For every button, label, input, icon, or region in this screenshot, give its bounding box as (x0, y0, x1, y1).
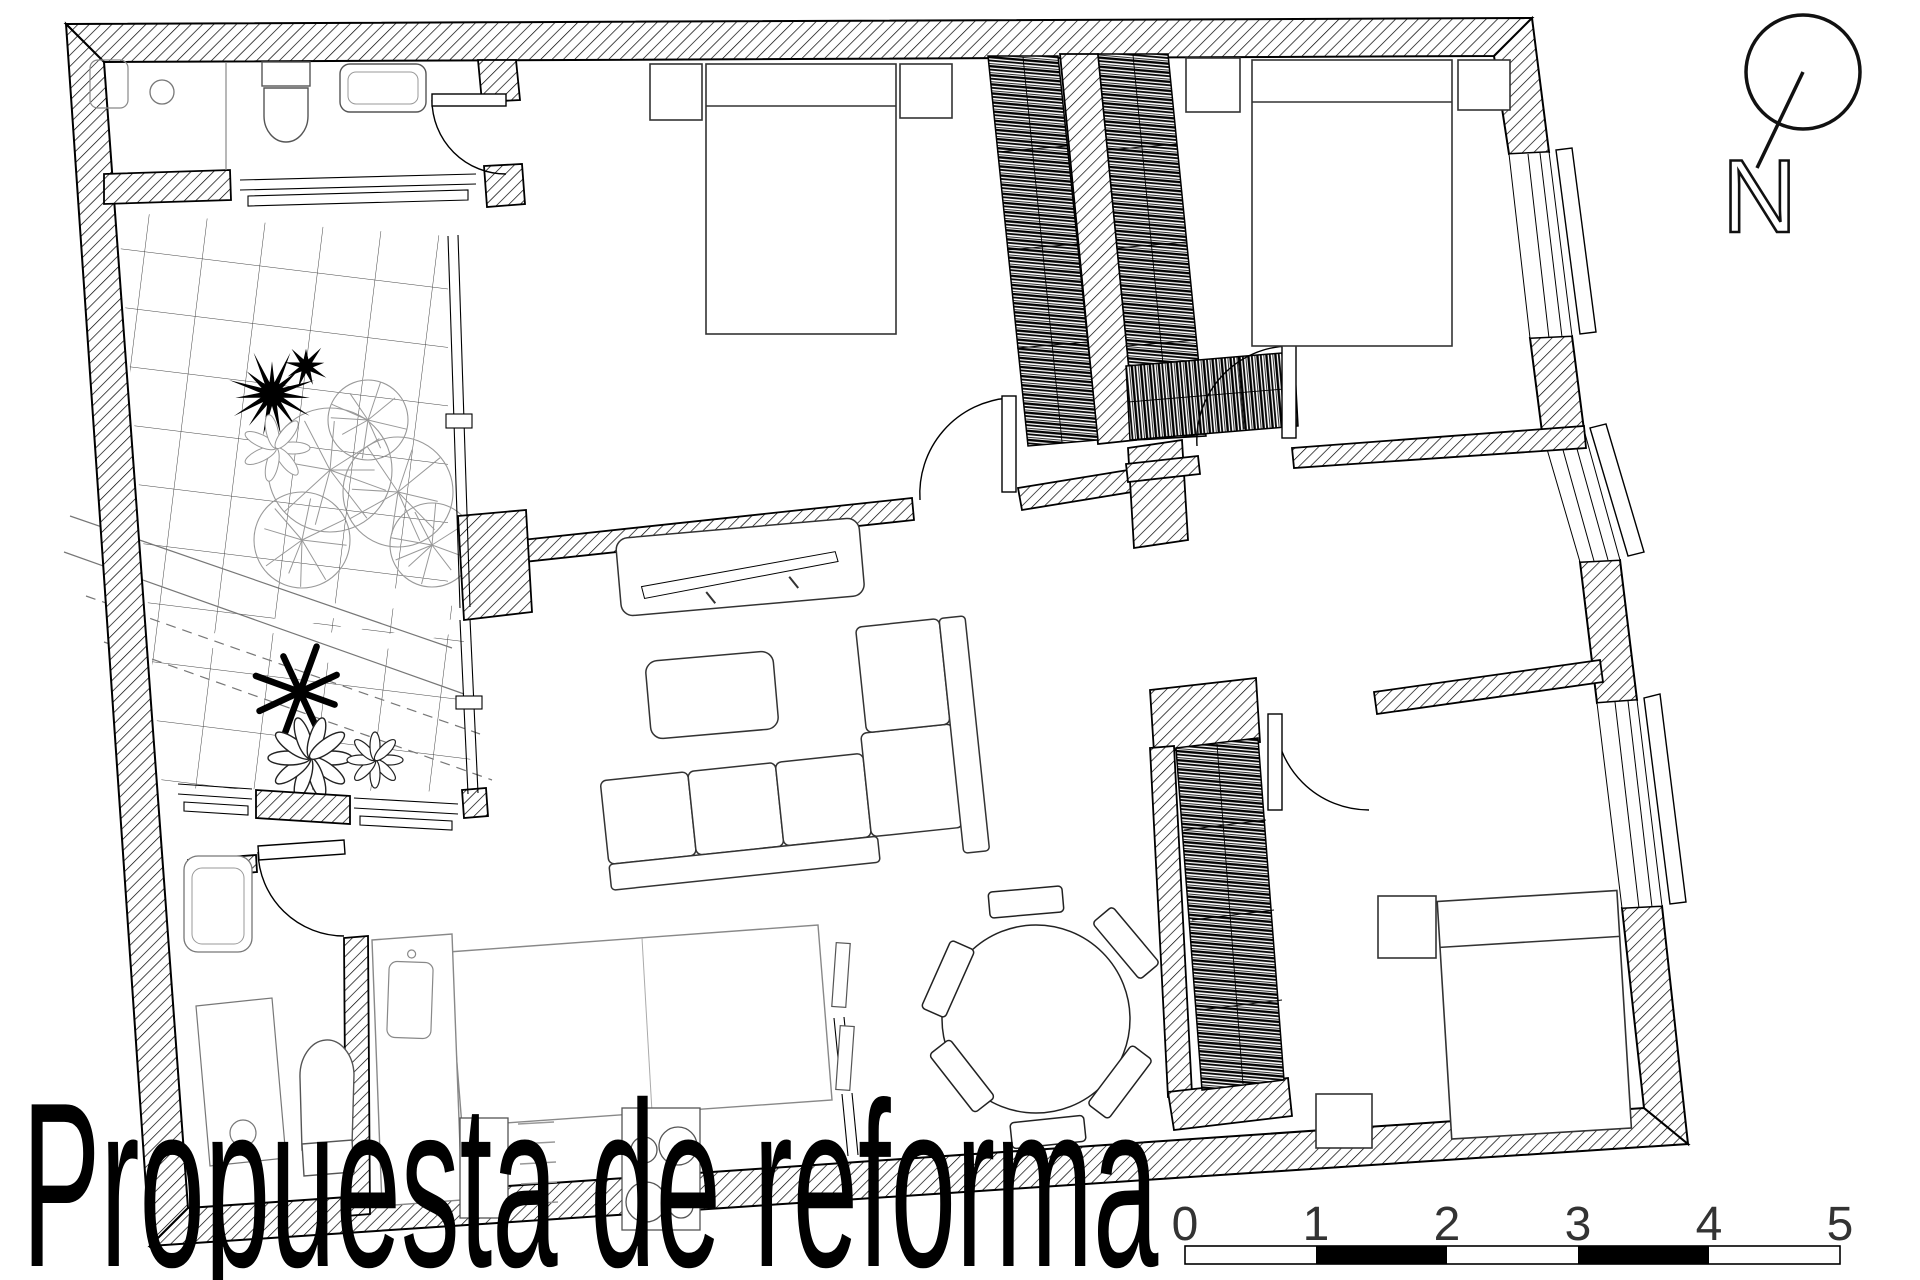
nightstand (900, 64, 952, 118)
wall-top (66, 18, 1532, 62)
wardrobe-bed2 (1126, 352, 1298, 440)
washbasin (184, 856, 252, 952)
bathroom-1 (90, 60, 426, 170)
scale-bar-track (1185, 1246, 1840, 1264)
scale-tick-label: 4 (1696, 1198, 1723, 1251)
nightstand (650, 64, 702, 120)
bedroom-3 (1316, 890, 1631, 1148)
dining-chair (988, 886, 1064, 918)
scale-tick-label: 2 (1434, 1198, 1461, 1251)
wall-bed2-bottom (1292, 426, 1586, 468)
floor-plan-sheet: N 0 1 2 3 4 5 Propuesta de reforma (0, 0, 1920, 1280)
bed (1437, 890, 1631, 1139)
scale-tick-label: 0 (1172, 1198, 1199, 1251)
living-room (587, 518, 990, 891)
door-bathroom1 (432, 94, 506, 174)
bedroom-1 (650, 64, 952, 334)
floor-plan-drawing: N 0 1 2 3 4 5 Propuesta de reforma (0, 0, 1920, 1280)
wall-bed3-top (1374, 660, 1603, 714)
scale-bar: 0 1 2 3 4 5 (1172, 1198, 1854, 1264)
bed (706, 64, 896, 334)
north-arrow-icon: N (1722, 15, 1860, 255)
sheet-title: Propuesta de reforma (22, 1055, 1159, 1280)
window-bedroom3 (1597, 694, 1686, 908)
door-bedroom3 (1268, 714, 1369, 810)
window-bedroom2 (1509, 148, 1596, 338)
nightstand (1186, 58, 1240, 112)
window-sill (184, 802, 248, 815)
window-sill (248, 190, 468, 206)
shower-drain (150, 80, 174, 104)
stool (832, 943, 850, 1008)
exterior-windows (1509, 148, 1686, 908)
toilet (262, 62, 310, 142)
scale-bar-segment (1578, 1246, 1709, 1264)
leafy-plant-icon (347, 732, 403, 788)
sofa (587, 616, 990, 890)
door-bedroom1 (920, 396, 1016, 500)
nightstand (1378, 896, 1436, 958)
north-label: N (1722, 139, 1797, 255)
scale-tick-label: 5 (1827, 1198, 1854, 1251)
window-sill (360, 816, 452, 830)
scale-bar-segment (1316, 1246, 1447, 1264)
nightstand (1316, 1094, 1372, 1148)
wall-right-upper2 (1530, 336, 1584, 432)
nightstand (1458, 60, 1510, 110)
bedroom-2 (1186, 58, 1510, 346)
door-bathroom2 (258, 840, 345, 936)
bed (1252, 60, 1452, 346)
coffee-table (645, 651, 779, 740)
scale-tick-label: 1 (1303, 1198, 1330, 1251)
scale-tick-label: 3 (1565, 1198, 1592, 1251)
washbasin (340, 64, 426, 112)
